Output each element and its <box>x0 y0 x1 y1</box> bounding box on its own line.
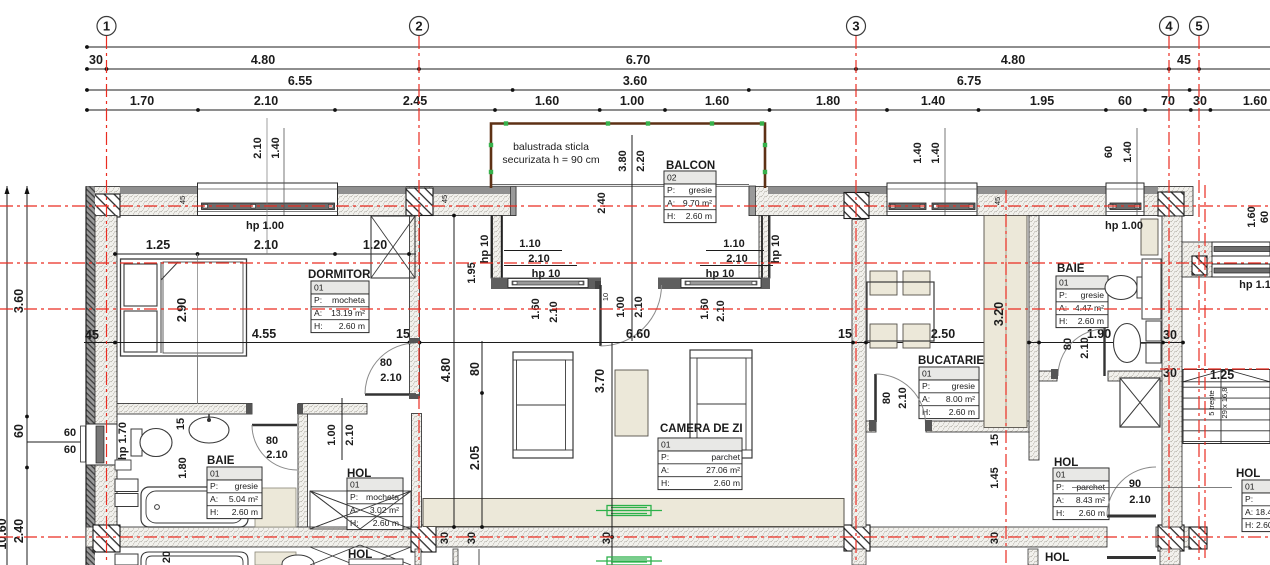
svg-text:H:: H: <box>661 478 670 488</box>
svg-text:3.20: 3.20 <box>992 302 1006 326</box>
svg-text:2.60 m: 2.60 m <box>949 407 975 417</box>
svg-text:80: 80 <box>1062 338 1074 350</box>
svg-text:H:: H: <box>1056 508 1065 518</box>
svg-text:2.20: 2.20 <box>635 150 647 171</box>
svg-text:1.20: 1.20 <box>363 238 387 252</box>
svg-text:3.02 m²: 3.02 m² <box>370 505 399 515</box>
svg-text:4.80: 4.80 <box>251 53 275 67</box>
svg-text:2.10: 2.10 <box>266 449 287 461</box>
svg-text:hp 1.70: hp 1.70 <box>117 422 129 460</box>
svg-text:60: 60 <box>64 444 76 456</box>
svg-text:1.40: 1.40 <box>270 137 282 158</box>
svg-text:30: 30 <box>1193 94 1207 108</box>
svg-text:BAIE: BAIE <box>207 455 235 467</box>
svg-text:01: 01 <box>314 282 324 292</box>
svg-text:8.43 m²: 8.43 m² <box>1076 495 1105 505</box>
svg-text:30: 30 <box>601 532 613 544</box>
svg-text:1.00: 1.00 <box>620 94 644 108</box>
svg-text:80: 80 <box>468 362 482 376</box>
svg-text:1.60: 1.60 <box>1246 206 1258 227</box>
svg-text:01: 01 <box>1056 469 1066 479</box>
svg-text:1.25: 1.25 <box>146 238 170 252</box>
svg-text:2.10: 2.10 <box>344 424 356 445</box>
svg-text:1.40: 1.40 <box>921 94 945 108</box>
svg-text:30: 30 <box>466 532 478 544</box>
svg-text:1.70: 1.70 <box>130 94 154 108</box>
svg-text:2.05: 2.05 <box>468 446 482 470</box>
svg-text:1.40: 1.40 <box>912 142 924 163</box>
svg-text:hp 1.00: hp 1.00 <box>1105 220 1143 232</box>
svg-text:H:: H: <box>314 321 323 331</box>
svg-text:2.10: 2.10 <box>897 387 909 408</box>
svg-text:80: 80 <box>380 357 392 369</box>
svg-text:P:: P: <box>667 185 675 195</box>
svg-text:2.10: 2.10 <box>252 137 264 158</box>
svg-text:A: 18.43: A: 18.43 <box>1245 507 1270 517</box>
svg-text:1.45: 1.45 <box>989 467 1001 488</box>
svg-text:45: 45 <box>178 196 187 204</box>
svg-text:2.10: 2.10 <box>254 94 278 108</box>
svg-text:1.95: 1.95 <box>466 262 478 283</box>
svg-text:30: 30 <box>989 532 1001 544</box>
svg-text:6.70: 6.70 <box>626 53 650 67</box>
svg-text:80: 80 <box>881 392 893 404</box>
svg-text:HOL: HOL <box>1236 468 1260 480</box>
svg-text:60: 60 <box>1103 146 1115 158</box>
svg-text:A:: A: <box>210 494 218 504</box>
svg-text:01: 01 <box>1245 481 1255 491</box>
svg-text:BAIE: BAIE <box>1057 263 1085 275</box>
svg-text:gresie: gresie <box>952 381 976 391</box>
svg-text:hp 1.1: hp 1.1 <box>1239 279 1270 291</box>
svg-text:H:: H: <box>667 211 676 221</box>
svg-text:2.90: 2.90 <box>175 298 189 322</box>
svg-text:2.60 m: 2.60 m <box>1078 316 1104 326</box>
svg-text:30: 30 <box>1163 328 1177 342</box>
svg-text:5: 5 <box>1195 19 1202 34</box>
svg-text:1.60: 1.60 <box>535 94 559 108</box>
svg-text:60: 60 <box>12 424 26 438</box>
svg-text:6.60: 6.60 <box>626 327 650 341</box>
svg-text:gresie: gresie <box>235 481 259 491</box>
svg-text:1.60: 1.60 <box>705 94 729 108</box>
svg-text:A:: A: <box>922 394 930 404</box>
svg-text:balustrada sticla: balustrada sticla <box>513 141 589 153</box>
svg-text:2.60 m: 2.60 m <box>686 211 712 221</box>
svg-text:securizata h = 90 cm: securizata h = 90 cm <box>502 154 599 166</box>
svg-text:2.60 m: 2.60 m <box>714 478 740 488</box>
svg-text:2.60 m: 2.60 m <box>1079 508 1105 518</box>
svg-text:P:: P: <box>1059 290 1067 300</box>
svg-text:A:: A: <box>667 198 675 208</box>
svg-text:1.80: 1.80 <box>177 457 189 478</box>
svg-text:1.40: 1.40 <box>930 142 942 163</box>
svg-text:4: 4 <box>1165 19 1173 34</box>
svg-text:1.10: 1.10 <box>519 238 540 250</box>
svg-text:P:: P: <box>661 452 669 462</box>
svg-text:10.60: 10.60 <box>0 518 9 549</box>
svg-text:4.80: 4.80 <box>1001 53 1025 67</box>
svg-text:45: 45 <box>440 195 449 203</box>
svg-text:hp 10: hp 10 <box>770 235 782 264</box>
svg-text:1.95: 1.95 <box>1030 94 1054 108</box>
svg-text:15: 15 <box>175 418 187 430</box>
svg-text:P:: P: <box>922 381 930 391</box>
svg-text:2.10: 2.10 <box>633 296 645 317</box>
svg-text:2.10: 2.10 <box>548 301 560 322</box>
svg-text:A:: A: <box>661 465 669 475</box>
svg-text:BUCATARIE: BUCATARIE <box>918 355 984 367</box>
svg-text:DORMITOR: DORMITOR <box>308 269 371 281</box>
svg-text:A:: A: <box>1056 495 1064 505</box>
svg-text:2.10: 2.10 <box>254 238 278 252</box>
svg-text:29 x 16,8: 29 x 16,8 <box>1220 388 1229 419</box>
svg-text:30: 30 <box>439 532 451 544</box>
svg-text:2.10: 2.10 <box>380 372 401 384</box>
svg-text:27.06 m²: 27.06 m² <box>706 465 740 475</box>
svg-text:1.80: 1.80 <box>816 94 840 108</box>
svg-text:15: 15 <box>989 434 1001 446</box>
svg-text:1: 1 <box>103 19 110 34</box>
svg-text:gresie: gresie <box>1081 290 1105 300</box>
svg-text:9.70 m²: 9.70 m² <box>683 198 712 208</box>
svg-text:01: 01 <box>350 479 360 489</box>
svg-text:60: 60 <box>64 427 76 439</box>
svg-text:3.80: 3.80 <box>617 150 629 171</box>
svg-text:70: 70 <box>1161 94 1175 108</box>
svg-text:P:: P: <box>1245 494 1253 504</box>
svg-text:P:: P: <box>350 492 358 502</box>
svg-text:60: 60 <box>1118 94 1132 108</box>
svg-text:45: 45 <box>1177 53 1191 67</box>
svg-text:P:: P: <box>314 295 322 305</box>
svg-text:01: 01 <box>922 368 932 378</box>
svg-text:5.04 m²: 5.04 m² <box>229 494 258 504</box>
svg-text:P:: P: <box>210 481 218 491</box>
svg-text:hp 10: hp 10 <box>706 268 735 280</box>
svg-text:6.55: 6.55 <box>288 74 312 88</box>
svg-text:gresie: gresie <box>689 185 713 195</box>
svg-text:30: 30 <box>89 53 103 67</box>
svg-text:3: 3 <box>852 19 859 34</box>
svg-text:45: 45 <box>85 328 99 342</box>
svg-text:15: 15 <box>396 327 410 341</box>
svg-text:H:: H: <box>210 507 219 517</box>
svg-text:80: 80 <box>266 435 278 447</box>
svg-text:4.55: 4.55 <box>252 327 276 341</box>
svg-text:2.40: 2.40 <box>596 192 608 213</box>
svg-text:hp 1.00: hp 1.00 <box>246 220 284 232</box>
svg-text:2.10: 2.10 <box>1129 494 1150 506</box>
svg-text:HOL: HOL <box>1054 457 1078 469</box>
svg-text:A:: A: <box>1059 303 1067 313</box>
svg-text:90: 90 <box>1129 478 1141 490</box>
svg-text:10: 10 <box>601 293 610 301</box>
svg-text:2.60 m: 2.60 m <box>232 507 258 517</box>
svg-text:45: 45 <box>993 197 1002 205</box>
svg-text:20: 20 <box>161 551 173 563</box>
svg-text:hp 10: hp 10 <box>479 235 491 264</box>
svg-text:2.10: 2.10 <box>715 300 727 321</box>
svg-text:H: 2.60: H: 2.60 <box>1245 520 1270 530</box>
svg-text:mocheta: mocheta <box>332 295 365 305</box>
svg-text:2.40: 2.40 <box>12 519 26 543</box>
svg-text:01: 01 <box>1059 277 1069 287</box>
svg-text:60: 60 <box>1259 211 1270 223</box>
svg-text:15: 15 <box>838 327 852 341</box>
svg-text:2.60 m: 2.60 m <box>339 321 365 331</box>
svg-text:P:: P: <box>1056 482 1064 492</box>
svg-text:30: 30 <box>1163 366 1177 380</box>
svg-text:parchet: parchet <box>711 452 740 462</box>
svg-text:1.00: 1.00 <box>326 424 338 445</box>
svg-text:1.10: 1.10 <box>723 238 744 250</box>
svg-text:1.25: 1.25 <box>1210 368 1234 382</box>
svg-text:hp 10: hp 10 <box>532 268 561 280</box>
svg-text:CAMERA DE ZI: CAMERA DE ZI <box>660 423 743 435</box>
svg-text:5 trepte: 5 trepte <box>1207 390 1216 415</box>
svg-text:6.75: 6.75 <box>957 74 981 88</box>
svg-text:HOL: HOL <box>1045 552 1069 564</box>
svg-text:4.80: 4.80 <box>439 358 453 382</box>
svg-text:3.70: 3.70 <box>593 369 607 393</box>
svg-text:01: 01 <box>661 439 671 449</box>
svg-text:1.60: 1.60 <box>1243 94 1267 108</box>
svg-text:4.47 m²: 4.47 m² <box>1075 303 1104 313</box>
svg-text:02: 02 <box>667 172 677 182</box>
svg-text:3.60: 3.60 <box>623 74 647 88</box>
svg-text:2.45: 2.45 <box>403 94 427 108</box>
svg-text:1.40: 1.40 <box>1122 141 1134 162</box>
svg-text:01: 01 <box>210 468 220 478</box>
svg-text:1.00: 1.00 <box>615 296 627 317</box>
svg-text:8.00 m²: 8.00 m² <box>946 394 975 404</box>
svg-text:H:: H: <box>1059 316 1068 326</box>
svg-text:2.10: 2.10 <box>1079 337 1091 358</box>
svg-text:BALCON: BALCON <box>666 160 715 172</box>
svg-text:2: 2 <box>415 19 422 34</box>
